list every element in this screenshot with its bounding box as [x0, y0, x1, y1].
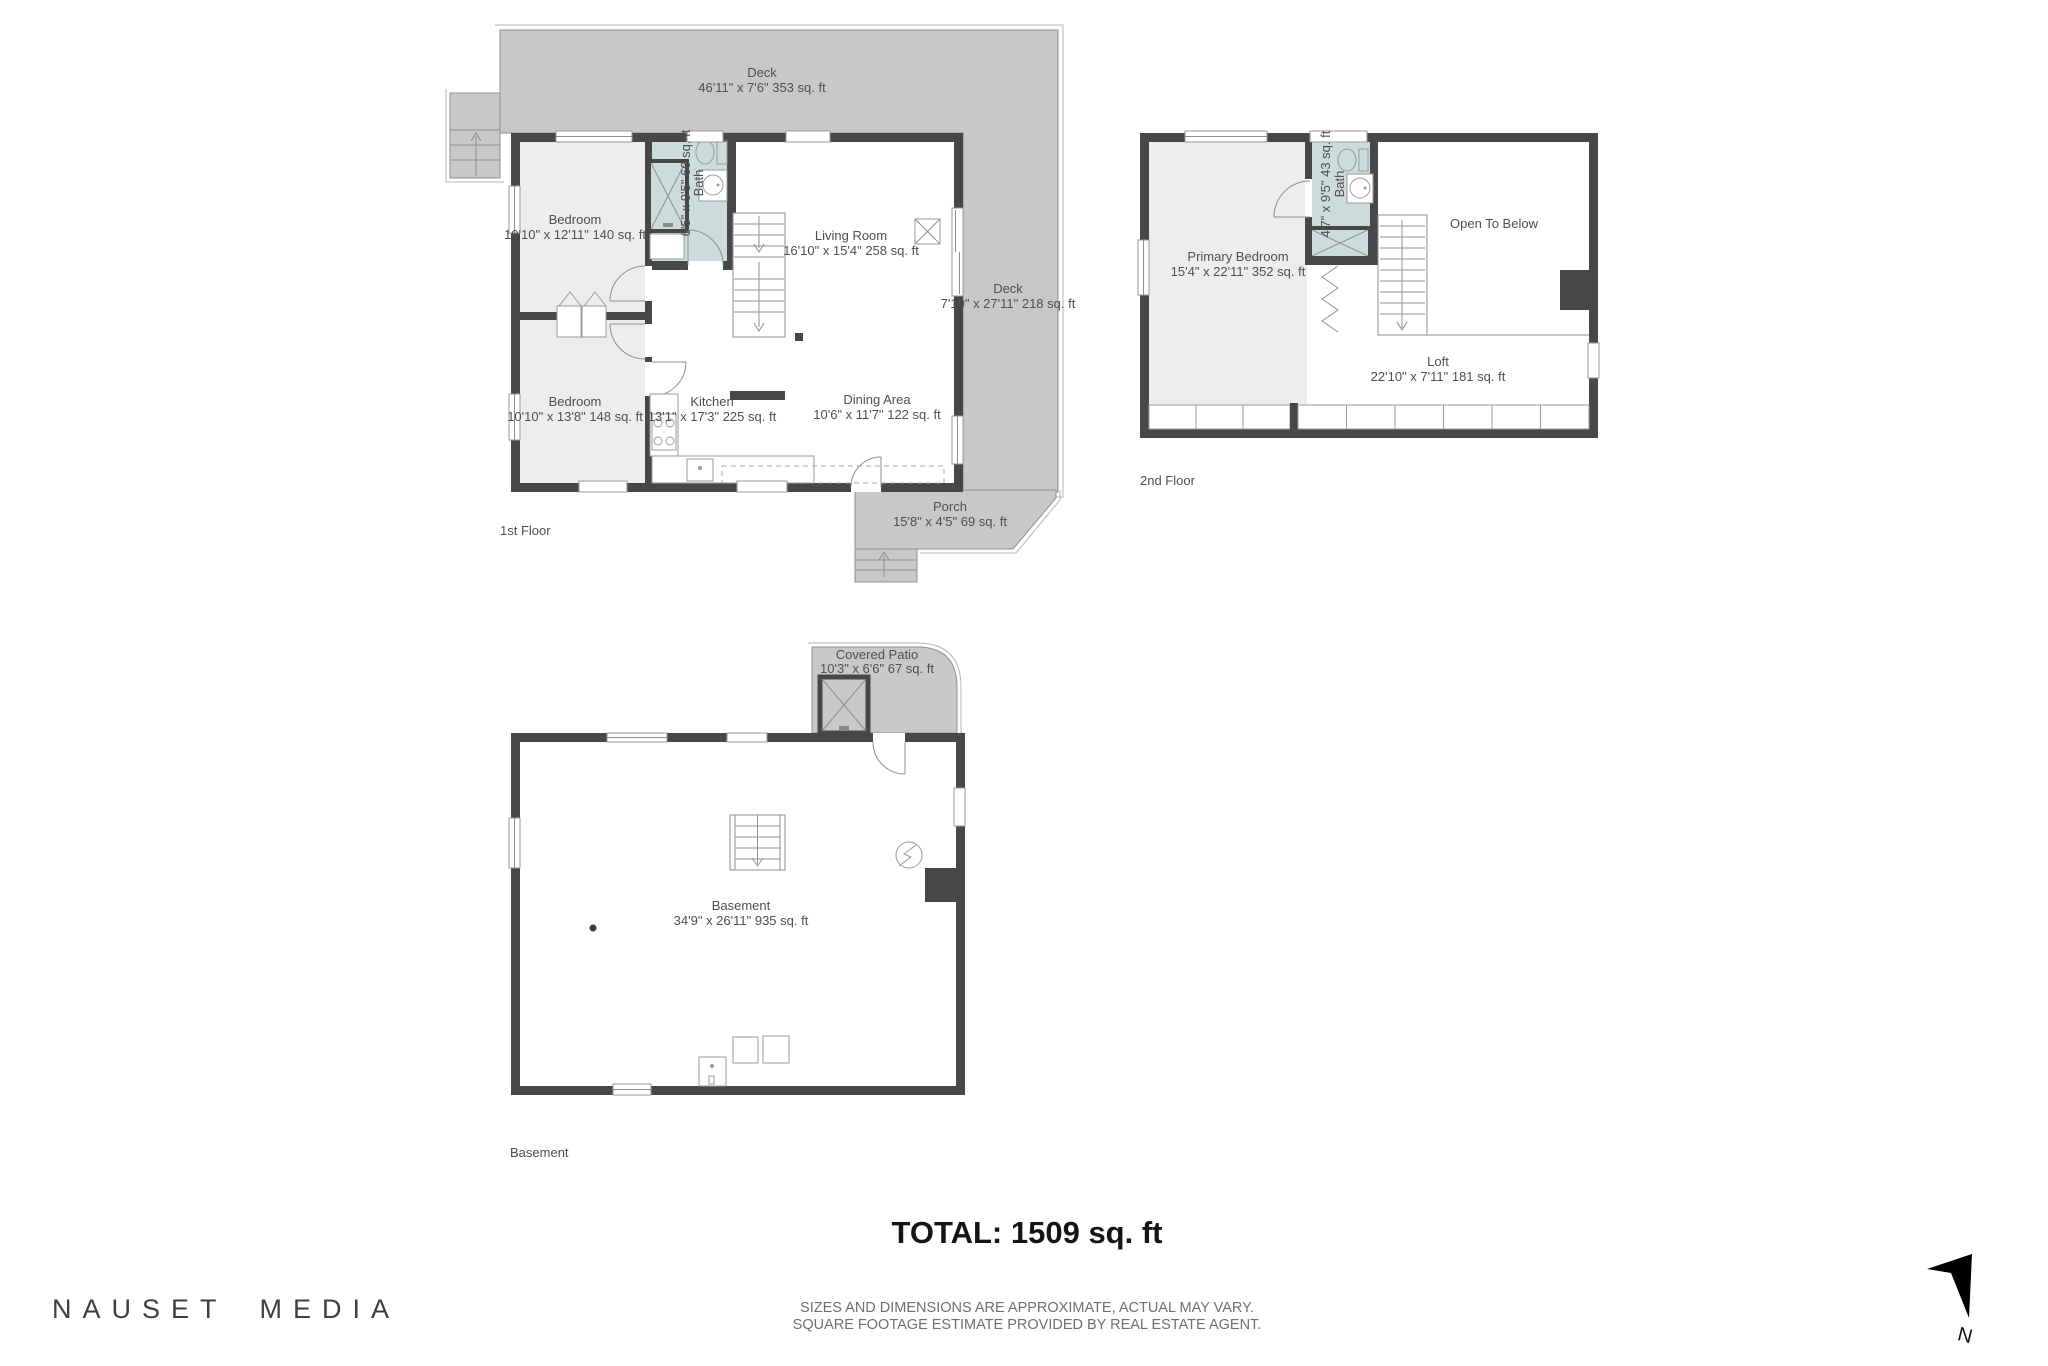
disclaimer-line2: SQUARE FOOTAGE ESTIMATE PROVIDED BY REAL…: [793, 1317, 1262, 1333]
bedroom1-dims: 10'10" x 12'11" 140 sq. ft: [504, 227, 646, 242]
dryer-icon: [763, 1036, 789, 1063]
slider-door: [952, 208, 963, 296]
bedroom2-dims: 10'10" x 13'8" 148 sq. ft: [507, 409, 643, 424]
second-floor-knee-windows: [1149, 403, 1589, 429]
porch-dims: 15'8" x 4'5" 69 sq. ft: [893, 514, 1007, 529]
utility-sink-icon: [699, 1057, 726, 1086]
north-arrow-icon: N: [1927, 1254, 1975, 1348]
primary-bedroom-name: Primary Bedroom: [1187, 249, 1288, 264]
total-square-footage: TOTAL: 1509 sq. ft: [891, 1215, 1162, 1250]
basement-stairs: [730, 815, 785, 870]
dining-dims: 10'6" x 11'7" 122 sq. ft: [813, 407, 941, 422]
first-floor-label: 1st Floor: [500, 523, 551, 538]
footer: TOTAL: 1509 sq. ft SIZES AND DIMENSIONS …: [52, 1215, 1975, 1348]
first-floor-plan: Deck 46'11" x 7'6" 353 sq. ft Bedroom 10…: [446, 25, 1076, 582]
north-label: N: [1955, 1323, 1974, 1348]
dining-name: Dining Area: [843, 392, 911, 407]
disclaimer-line1: SIZES AND DIMENSIONS ARE APPROXIMATE, AC…: [800, 1300, 1254, 1316]
ceiling-hatch: [915, 219, 940, 244]
deck-right-dims: 7'10" x 27'11" 218 sq. ft: [941, 296, 1076, 311]
structural-post: [795, 333, 803, 341]
deck-top-dims: 46'11" x 7'6" 353 sq. ft: [698, 80, 826, 95]
bath2-name: Bath: [1332, 171, 1347, 198]
open-to-below-label: Open To Below: [1450, 216, 1539, 231]
loft-dims: 22'10" x 7'11" 181 sq. ft: [1371, 369, 1506, 384]
loft-name: Loft: [1427, 354, 1449, 369]
vanity-cabinet: [650, 234, 684, 259]
second-floor-label: 2nd Floor: [1140, 473, 1196, 488]
basement-room-name: Basement: [712, 898, 771, 913]
brand-logo: NAUSET MEDIA: [52, 1294, 400, 1324]
washer-icon: [733, 1037, 758, 1063]
bedroom2-name: Bedroom: [549, 394, 602, 409]
counter-bottom: [652, 456, 814, 483]
second-floor-plan: Primary Bedroom 15'4" x 22'11" 352 sq. f…: [1138, 130, 1599, 488]
primary-bedroom-dims: 15'4" x 22'11" 352 sq. ft: [1171, 264, 1306, 279]
covered-patio-name: Covered Patio: [836, 647, 918, 662]
basement-room-dims: 34'9" x 26'11" 935 sq. ft: [674, 913, 809, 928]
main-stairs: [733, 213, 785, 337]
covered-patio-dims: 10'3" x 6'6" 67 sq. ft: [820, 661, 934, 676]
floor-plan-canvas: Deck 46'11" x 7'6" 353 sq. ft Bedroom 10…: [0, 0, 2048, 1366]
deck-top-name: Deck: [747, 65, 777, 80]
bath-name: Bath: [691, 170, 706, 197]
porch-steps: [855, 549, 917, 582]
chimney-second-floor: [1560, 270, 1598, 310]
bedroom1-name: Bedroom: [549, 212, 602, 227]
support-post: [590, 925, 597, 932]
basement-plan: Covered Patio 10'3" x 6'6" 67 sq. ft Bas…: [509, 643, 965, 1160]
deck-right-name: Deck: [993, 281, 1023, 296]
sink-faucet-icon: [717, 184, 720, 187]
floor-plan-page: Deck 46'11" x 7'6" 353 sq. ft Bedroom 10…: [0, 0, 2048, 1366]
living-dims: 16'10" x 15'4" 258 sq. ft: [783, 243, 919, 258]
outdoor-shower: [820, 677, 868, 733]
living-name: Living Room: [815, 228, 887, 243]
bath2-dims: 4'7" x 9'5" 43 sq. ft: [1318, 130, 1333, 237]
kitchen-dims: 13'1" x 17'3" 225 sq. ft: [648, 409, 777, 424]
chimney-basement: [925, 868, 965, 902]
basement-floor-label: Basement: [510, 1145, 569, 1160]
kitchen-name: Kitchen: [690, 394, 733, 409]
porch-name: Porch: [933, 499, 967, 514]
shower-valve-icon: [663, 223, 673, 227]
